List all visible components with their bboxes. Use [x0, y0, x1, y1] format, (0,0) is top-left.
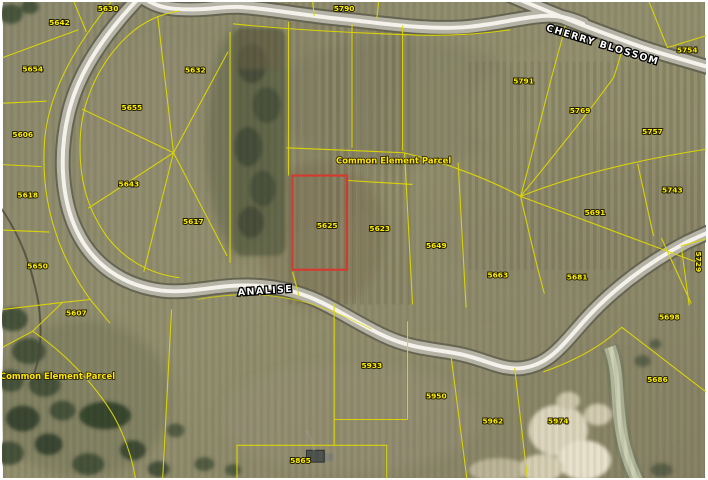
parcel-label-5642: 5642: [49, 18, 70, 27]
map-frame: 5630579056425754565456325791565557695757…: [0, 0, 708, 480]
parcel-label-5655: 5655: [122, 103, 143, 112]
parcel-label-5618: 5618: [17, 190, 38, 199]
parcel-label-5791: 5791: [513, 76, 534, 85]
parcel-label-5650: 5650: [27, 262, 48, 271]
parcel-label-5623: 5623: [369, 224, 390, 233]
parcel-label-5729: 5729: [694, 251, 703, 272]
parcel-label-5606: 5606: [12, 130, 33, 139]
parcel-label-5654: 5654: [22, 64, 43, 73]
parcel-label-5974: 5974: [548, 416, 569, 425]
parcel-label-5686: 5686: [647, 375, 668, 384]
parcel-label-5691: 5691: [585, 208, 606, 217]
parcel-label-5617: 5617: [183, 217, 204, 226]
parcel-label-5625: 5625: [317, 221, 338, 230]
parcel-label-5630: 5630: [98, 4, 119, 13]
parcel-label-5865: 5865: [290, 456, 311, 465]
parcel-label-5754: 5754: [677, 46, 698, 55]
parcel-label-5962: 5962: [482, 416, 503, 425]
parcel-label-5681: 5681: [567, 273, 588, 282]
parcel-label-5607: 5607: [66, 308, 87, 317]
parcel-label-5643: 5643: [119, 179, 140, 188]
parcel-label-5950: 5950: [426, 392, 447, 401]
common-element-label-1: Common Element Parcel: [336, 156, 451, 166]
common-element-label-2: Common Element Parcel: [2, 371, 115, 381]
parcel-label-5743: 5743: [662, 185, 683, 194]
parcel-label-5769: 5769: [570, 106, 591, 115]
aerial-map[interactable]: 5630579056425754565456325791565557695757…: [2, 2, 706, 478]
parcel-label-5698: 5698: [659, 312, 680, 321]
parcel-label-5663: 5663: [487, 271, 508, 280]
parcel-label-5649: 5649: [426, 241, 447, 250]
parcel-label-5632: 5632: [185, 65, 206, 74]
parcel-label-5790: 5790: [334, 4, 355, 13]
parcel-label-5757: 5757: [642, 127, 663, 136]
parcel-label-5933: 5933: [362, 361, 383, 370]
map-viewport[interactable]: 5630579056425754565456325791565557695757…: [0, 0, 708, 480]
